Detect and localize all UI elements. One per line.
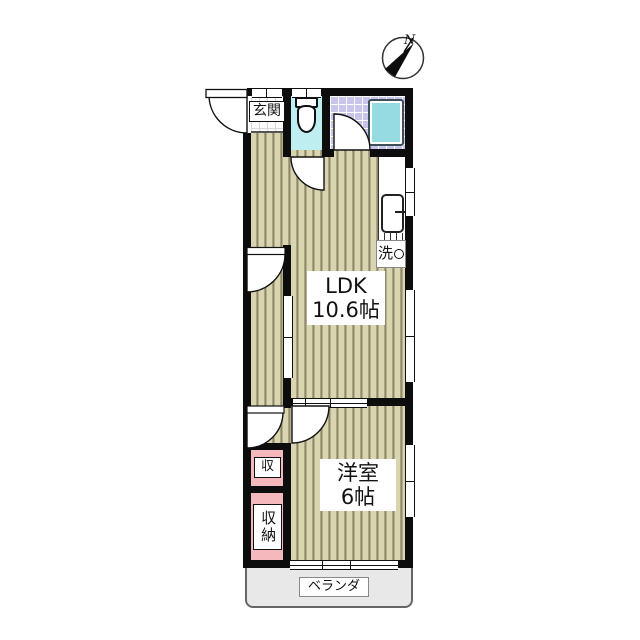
ldk-name: LDK [325, 274, 367, 298]
wall-divider-left [283, 398, 293, 406]
window-right-kitchen [405, 168, 415, 216]
storage-label: 収 [261, 460, 274, 475]
wall-divider-right [367, 398, 405, 406]
entrance-label-box: 玄関 [249, 101, 285, 122]
window-right-western-room [405, 445, 415, 517]
veranda-label-box: ベランダ [299, 577, 369, 597]
ldk-size: 10.6帖 [312, 298, 380, 322]
laundry-label-box: 洗 [376, 240, 406, 268]
laundry-label: 洗 [378, 245, 393, 262]
wall-hall-upper-stub [283, 245, 291, 296]
toilet-bowl-icon [297, 105, 316, 133]
veranda-label: ベランダ [308, 580, 360, 595]
wall-toilet-left [283, 88, 291, 157]
entrance-door-arc [209, 95, 247, 133]
window-veranda-sliding-door [290, 560, 398, 570]
wall-storage-divider [243, 486, 291, 493]
wall-under-toilet-stub [322, 149, 334, 157]
wall-hall-bottom [283, 443, 291, 568]
sliding-door-hall-ldk [283, 296, 293, 378]
western-room-label-box: 洋室 6帖 [320, 459, 396, 511]
ldk-label-box: LDK 10.6帖 [307, 271, 385, 325]
entrance-door-leaf [206, 90, 247, 98]
wall-storage-top [243, 443, 291, 450]
window-top-entrance [252, 88, 282, 98]
window-right-ldk [405, 290, 415, 382]
kitchen-sink-icon [381, 194, 404, 233]
closet-label: 収納 [259, 510, 276, 544]
compass-north-label: N [403, 33, 416, 48]
western-room-size: 6帖 [341, 485, 375, 509]
faucet-icon [395, 211, 405, 213]
counter-edge-ticks [378, 233, 405, 240]
faucet-circle-icon [394, 249, 404, 259]
entrance-step-line [251, 131, 283, 133]
sliding-door-ldk-western-room [293, 398, 367, 408]
compass-icon [383, 38, 424, 79]
bathtub-icon [368, 99, 404, 146]
compass-needle [385, 43, 414, 77]
compass-needle-shaft [404, 38, 413, 52]
wall-under-bath [370, 149, 405, 157]
wall-toilet-right [322, 88, 330, 157]
storage-label-box: 収 [254, 457, 281, 478]
closet-label-box: 収納 [253, 504, 282, 550]
wall-left [243, 133, 251, 568]
western-room-name: 洋室 [337, 461, 379, 485]
entrance-label: 玄関 [253, 103, 281, 119]
floor-plan: N 玄関 LDK 10.6帖 洗 洋室 6帖 収 収納 ベランダ [0, 0, 640, 640]
